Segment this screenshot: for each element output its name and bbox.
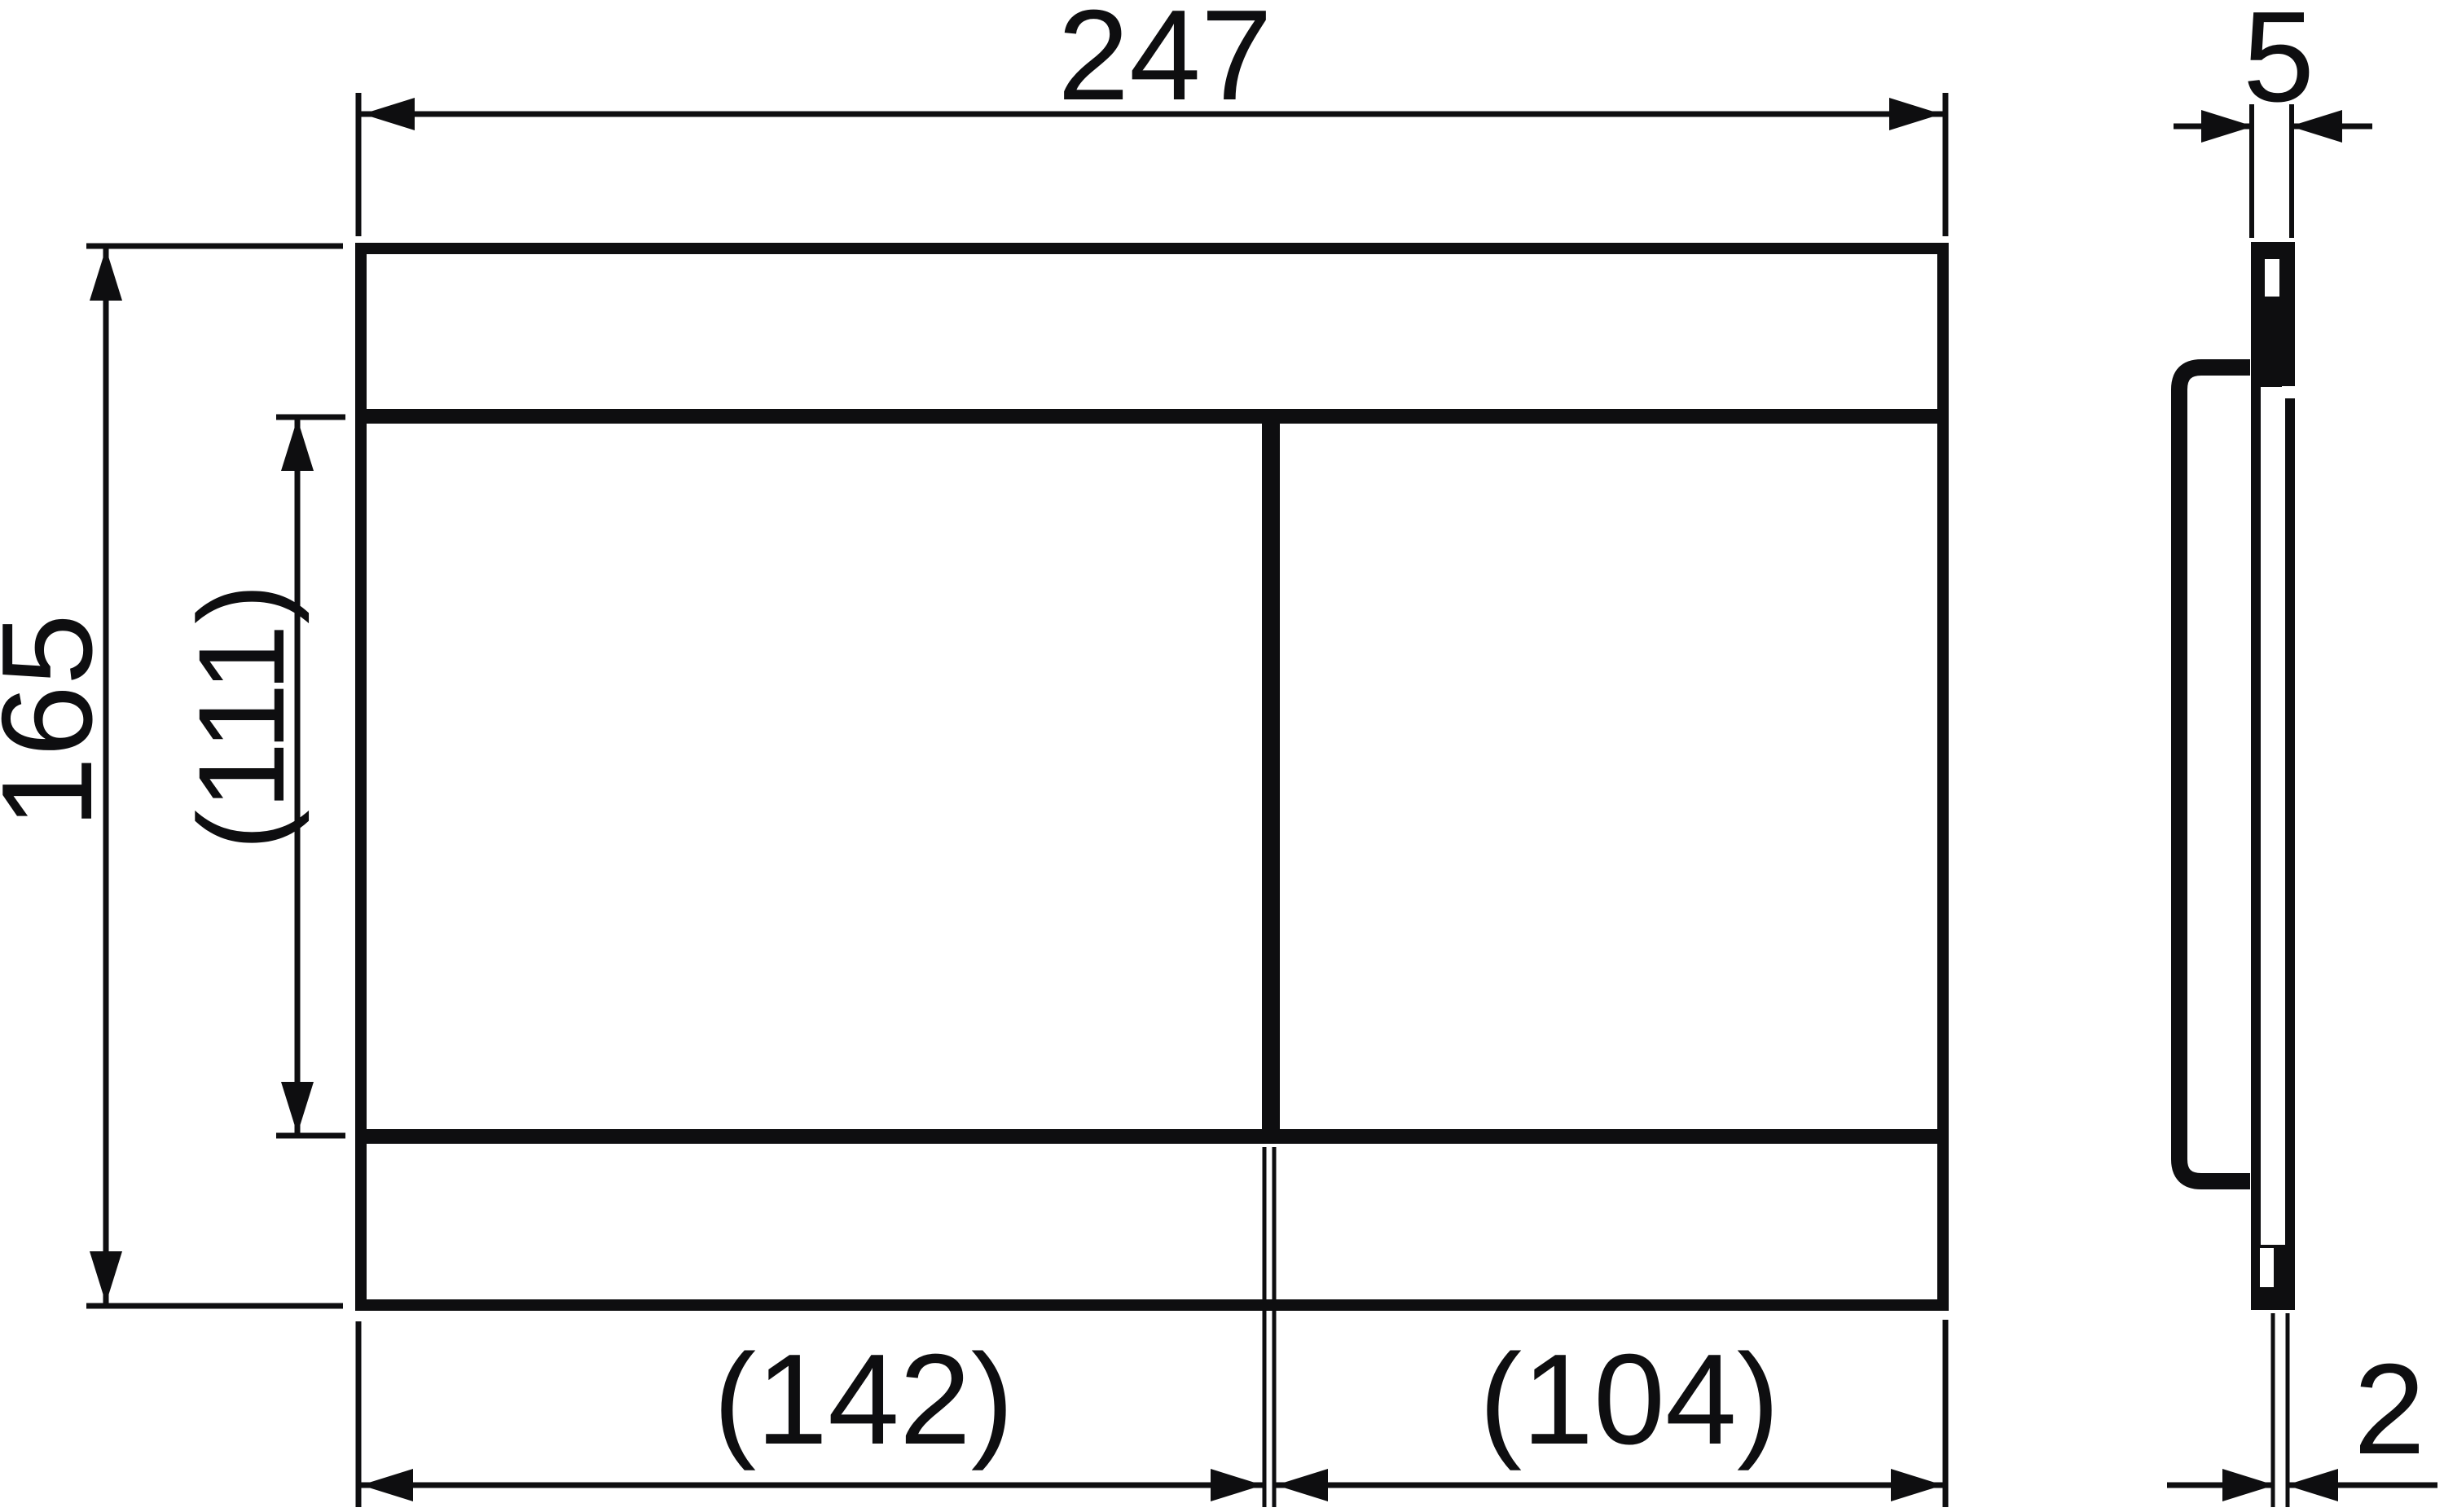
side-top-clip-gap <box>2282 386 2297 398</box>
arrowhead-right-icon <box>1211 1469 1263 1501</box>
dimension-overall-width: 247 <box>358 0 1945 236</box>
dimension-button-field-height: (111) <box>173 417 345 1136</box>
drawing-canvas: 247 165 (111) (142) (104) <box>0 0 2444 1512</box>
side-top-clip-notch <box>2265 259 2279 297</box>
plate-thickness-label: 5 <box>2243 0 2314 129</box>
overall-width-label: 247 <box>1057 0 1273 127</box>
arrowhead-up-icon <box>90 248 122 301</box>
rear-offset-label: 2 <box>2354 1338 2425 1481</box>
right-button-width-label: (104) <box>1479 1328 1780 1471</box>
overall-height-label: 165 <box>0 613 119 829</box>
arrowhead-left-icon <box>2286 1469 2338 1501</box>
arrowhead-left-icon <box>1276 1469 1328 1501</box>
side-rear-frame <box>2179 367 2250 1181</box>
side-bottom-clip-notch <box>2260 1248 2274 1287</box>
flush-plate-technical-drawing: 247 165 (111) (142) (104) <box>0 0 2444 1512</box>
arrowhead-left-icon <box>363 98 415 130</box>
arrowhead-right-icon <box>1889 98 1941 130</box>
dimension-plate-thickness: 5 <box>2174 0 2372 238</box>
arrowhead-left-icon <box>361 1469 413 1501</box>
arrowhead-right-icon <box>2222 1469 2275 1501</box>
front-view <box>355 248 1949 1305</box>
plate-outline <box>361 248 1943 1305</box>
arrowhead-down-icon <box>281 1082 314 1134</box>
arrowhead-down-icon <box>90 1251 122 1303</box>
button-field-height-label: (111) <box>173 583 310 850</box>
side-view <box>2179 247 2297 1310</box>
arrowhead-up-icon <box>281 419 314 471</box>
side-plate-profile <box>2256 247 2290 1305</box>
left-button-width-label: (142) <box>714 1328 1014 1471</box>
arrowhead-right-icon <box>1891 1469 1943 1501</box>
dimension-rear-offset: 2 <box>2167 1313 2437 1507</box>
